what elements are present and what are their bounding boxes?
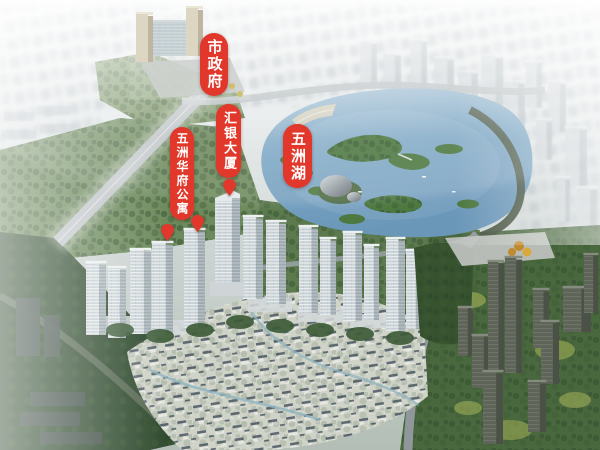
aerial-scene <box>0 0 600 450</box>
aerial-rendering: 市政府 汇银大厦 五洲湖 五洲华府公寓 <box>0 0 600 450</box>
city-government-complex <box>130 0 250 100</box>
huiyin-tower-building <box>210 191 244 297</box>
